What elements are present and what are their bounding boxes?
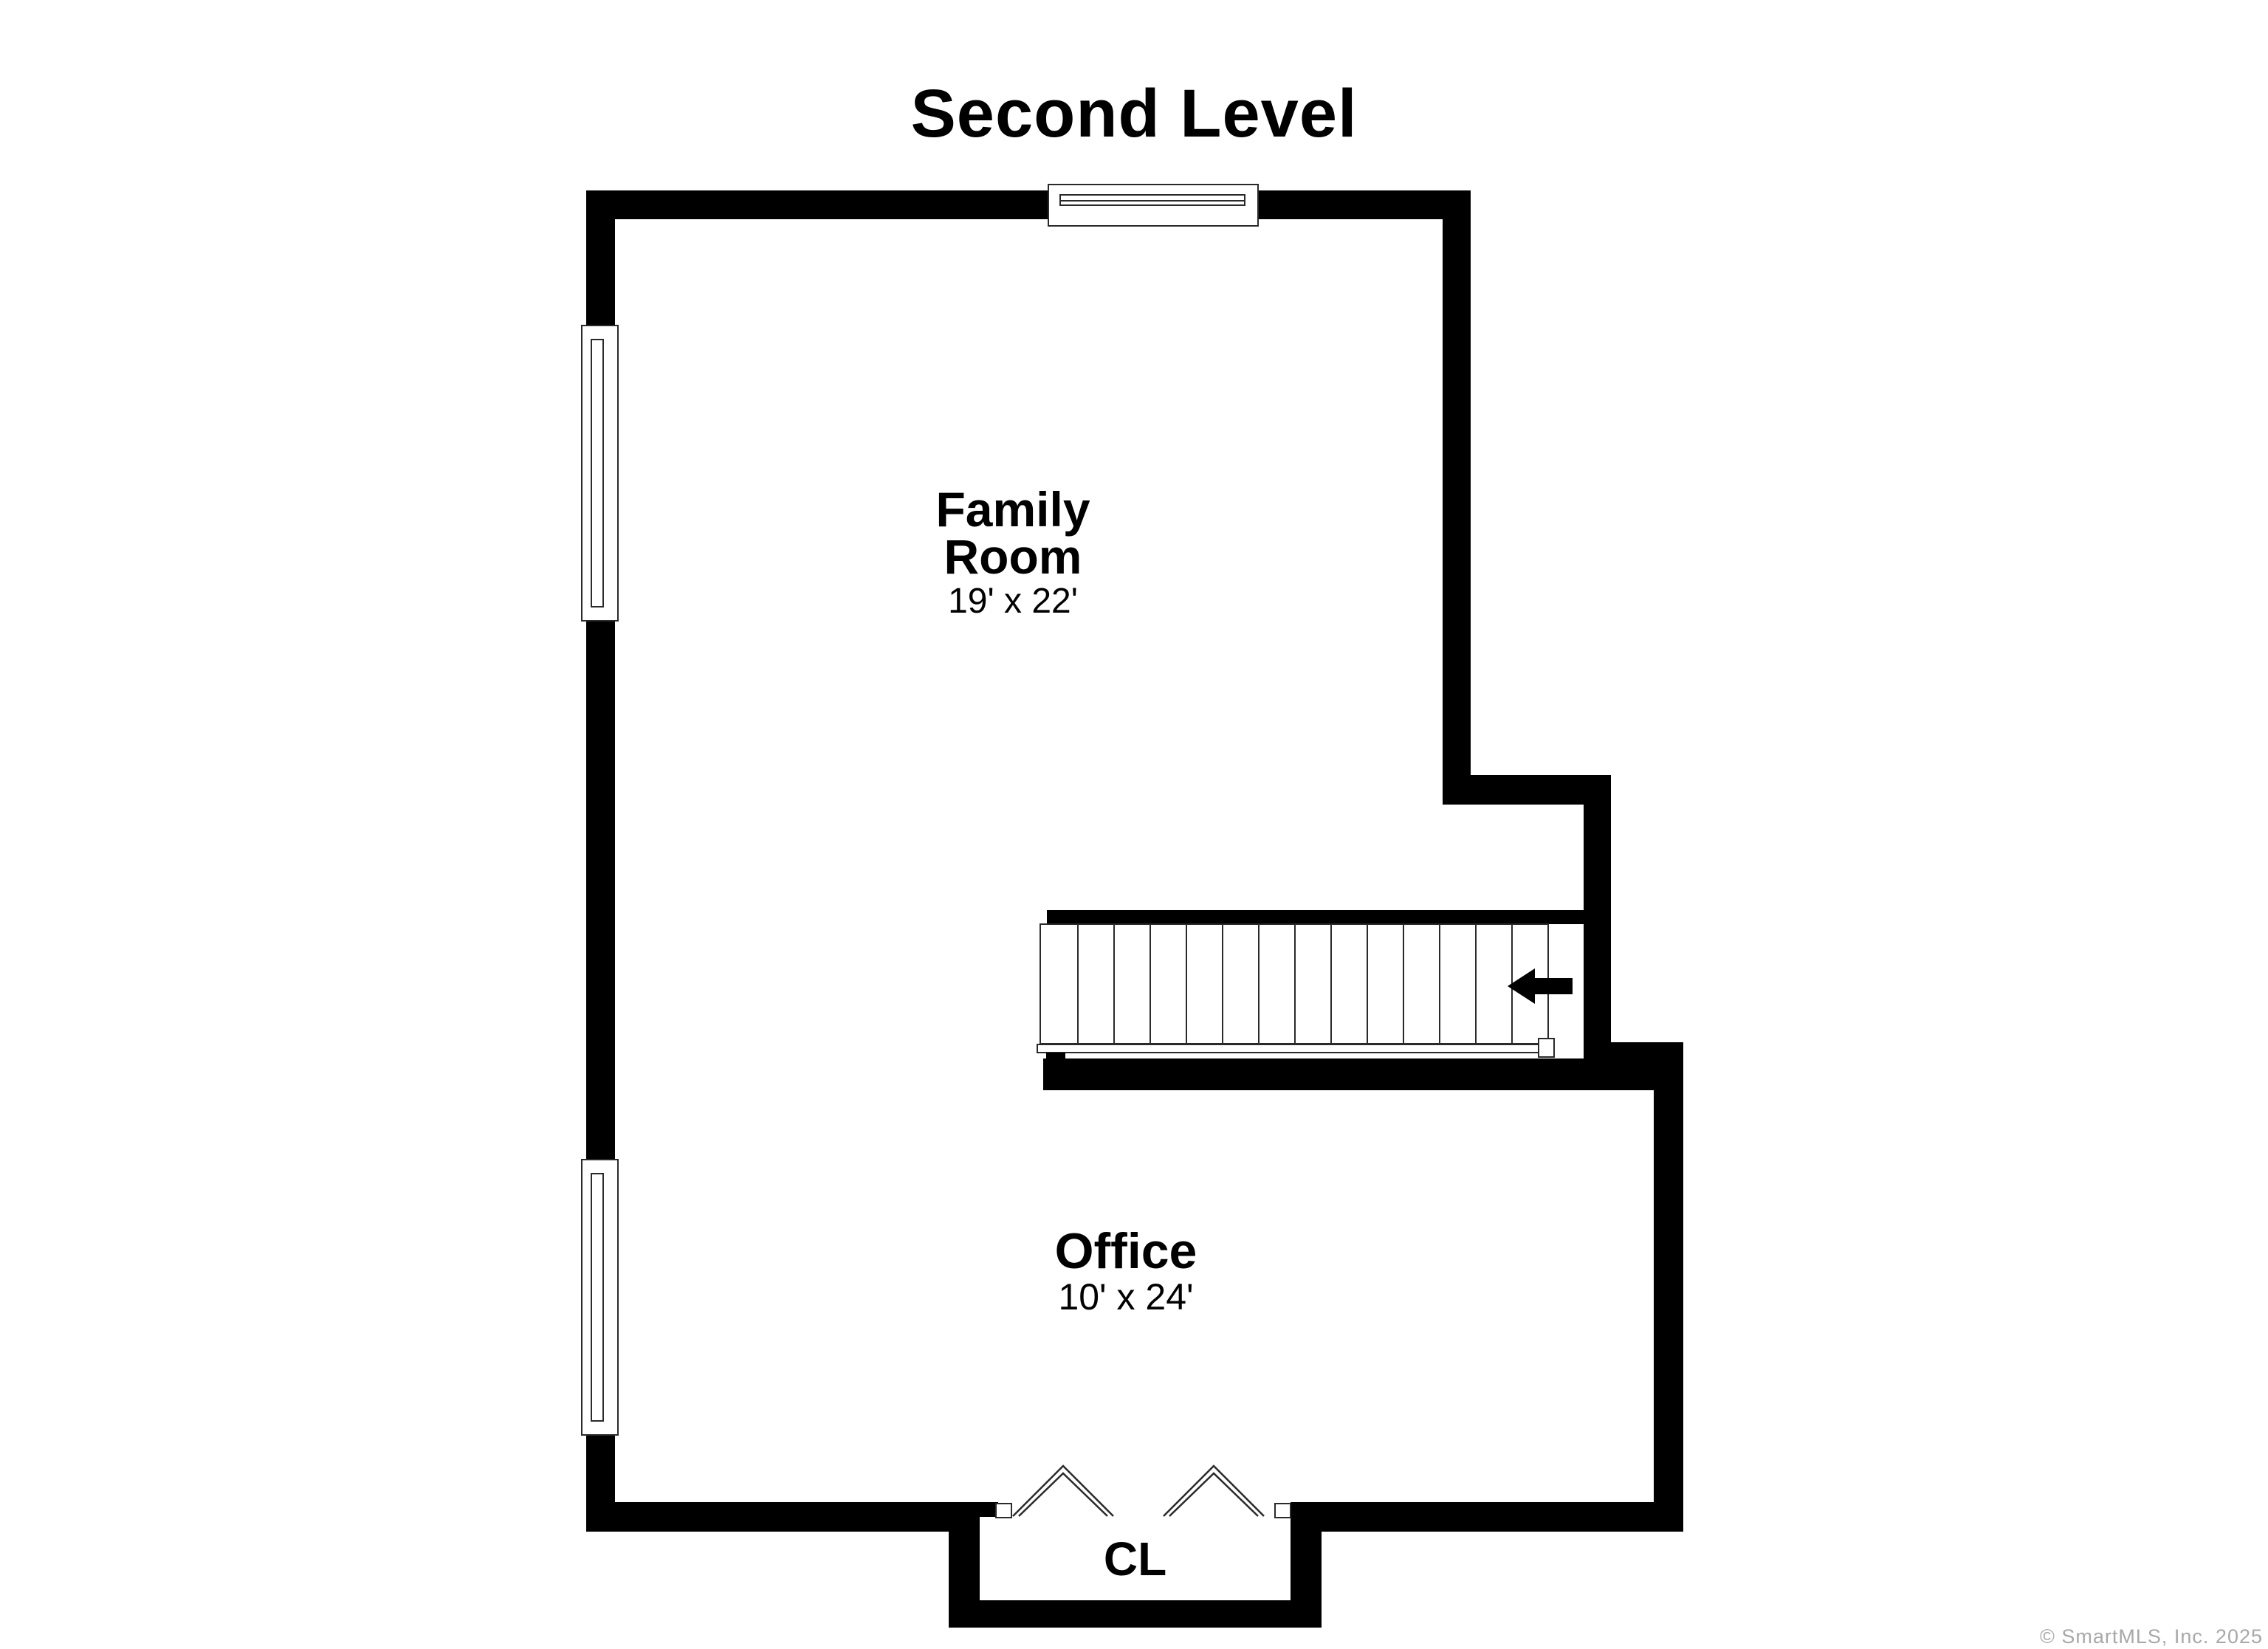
window-pane (591, 1173, 604, 1422)
stair-tread-line (1258, 925, 1260, 1043)
stair-tread-line (1475, 925, 1477, 1043)
stair-tread-line (1222, 925, 1223, 1043)
top-wall-window (1048, 184, 1259, 227)
stairs-treads (1039, 923, 1549, 1044)
stair-tread-line (1403, 925, 1404, 1043)
stair-tread-line (1294, 925, 1296, 1043)
room-name-line: Office (904, 1227, 1347, 1276)
wall-below-stairs (1043, 1058, 1683, 1090)
stair-tread-line (1367, 925, 1368, 1043)
wall-top (586, 190, 1471, 219)
wall-right-upper (1443, 190, 1471, 805)
room-name-line: Room (791, 533, 1234, 580)
stairs-handrail (1037, 1044, 1544, 1053)
stair-tread-line (1150, 925, 1151, 1043)
wall-step-upper-vertical (1584, 775, 1611, 1068)
bifold-door-left-inner (1019, 1473, 1107, 1516)
bifold-door-right-inner (1169, 1473, 1258, 1516)
wall-right-lower (1654, 1042, 1683, 1532)
stair-tread-line (1077, 925, 1079, 1043)
wall-bottom-right-segment (1291, 1502, 1683, 1532)
floor-plan-canvas: Second Level CL (0, 0, 2268, 1649)
arrow-head-icon (1508, 968, 1535, 1004)
closet-bifold-doors (997, 1459, 1277, 1521)
window-mullion (1059, 200, 1245, 202)
watermark: © SmartMLS, Inc. 2025 (2040, 1625, 2263, 1648)
left-wall-lower-window (581, 1159, 619, 1436)
room-name-line: Family (791, 486, 1234, 533)
left-wall-upper-window (581, 325, 619, 622)
stairs-rail-stub (1046, 1053, 1065, 1060)
closet-wall-bottom (949, 1600, 1322, 1628)
stair-tread-line (1186, 925, 1187, 1043)
stair-tread-line (1330, 925, 1332, 1043)
wall-bottom-left-segment (586, 1502, 998, 1532)
stairs-direction-arrow (1508, 968, 1573, 1004)
stair-tread-line (1439, 925, 1440, 1043)
window-pane (591, 339, 604, 607)
room-dimensions: 10' x 24' (904, 1276, 1347, 1318)
floor-plan-title: Second Level (0, 75, 2268, 153)
closet-room: CL (980, 1517, 1291, 1600)
family-room-label: Family Room 19' x 22' (791, 486, 1234, 623)
arrow-shaft (1534, 978, 1573, 994)
office-label: Office 10' x 24' (904, 1227, 1347, 1318)
stairs-newel-post (1538, 1038, 1555, 1058)
closet-label: CL (1104, 1532, 1166, 1586)
stair-tread-line (1113, 925, 1115, 1043)
wall-above-stairs (1047, 910, 1584, 924)
room-dimensions: 19' x 22' (791, 580, 1234, 623)
